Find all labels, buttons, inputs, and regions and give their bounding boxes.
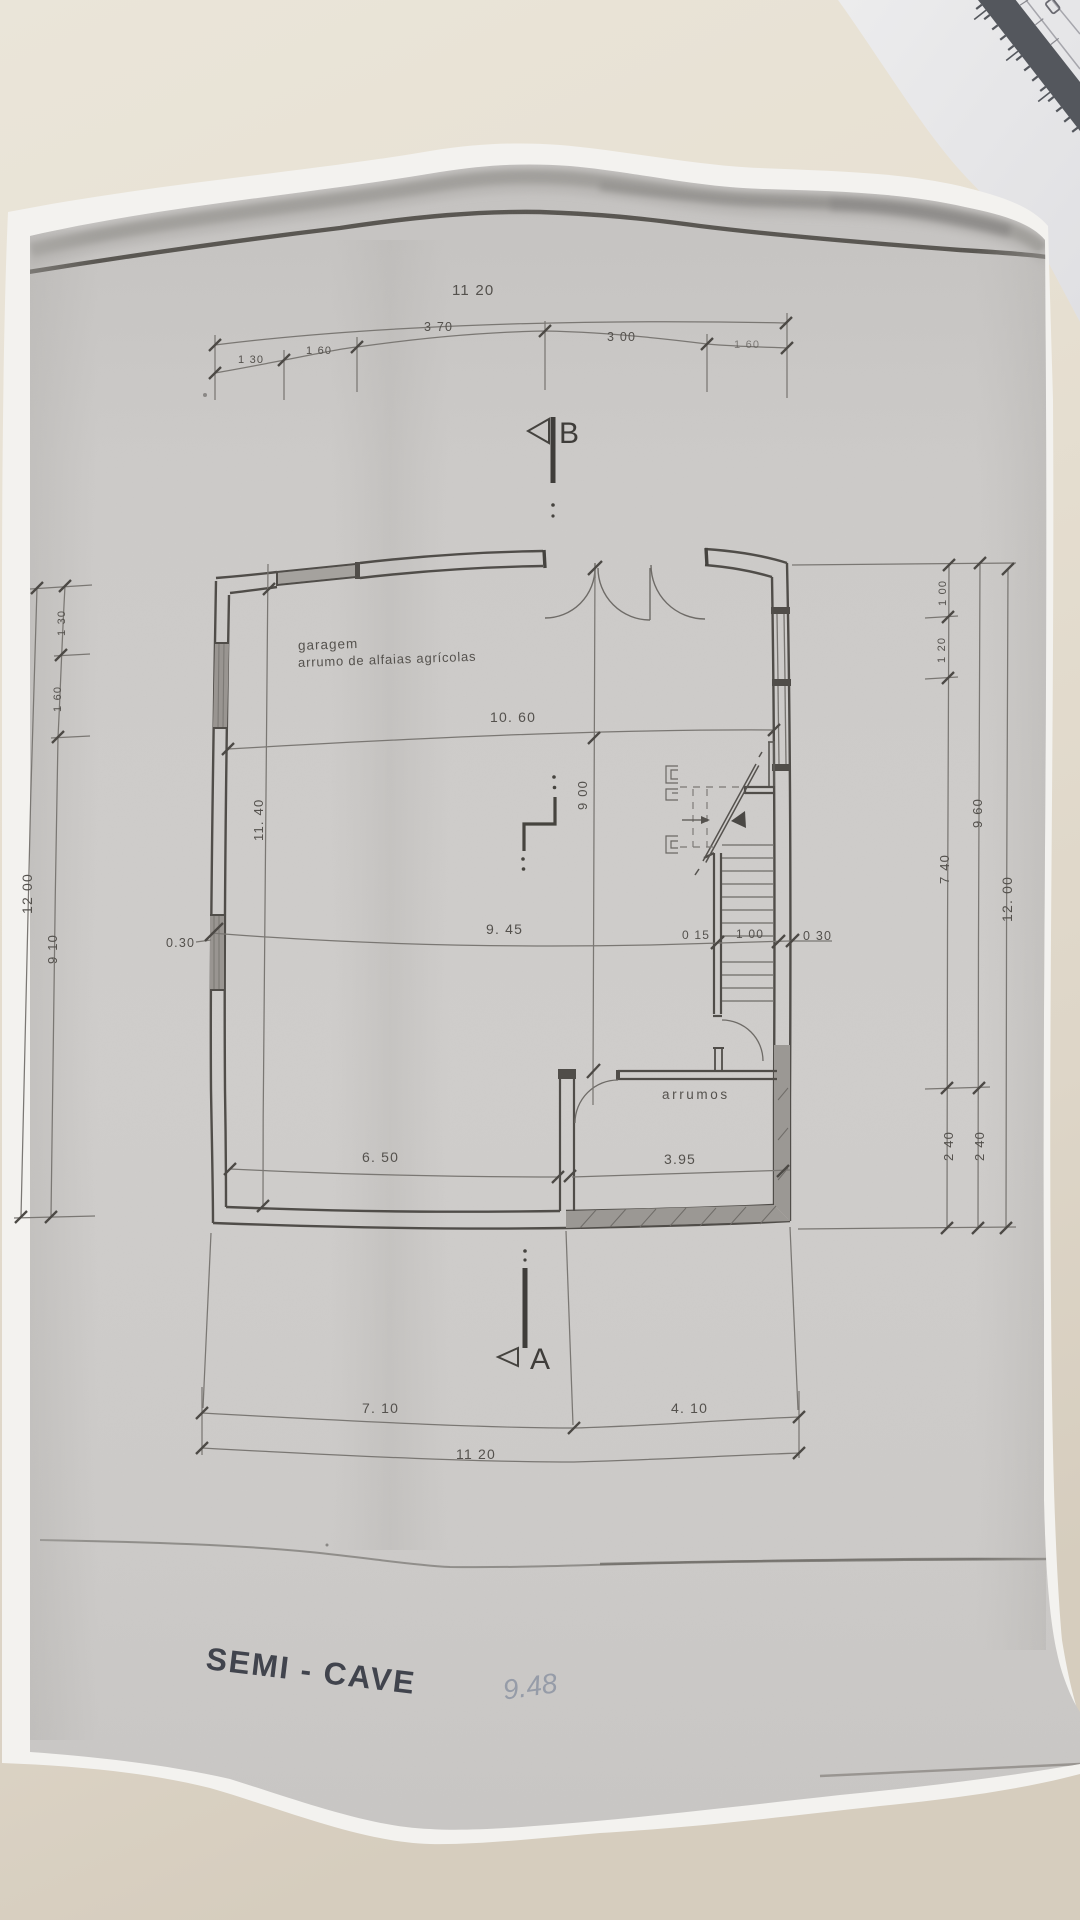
svg-text:12 00: 12 00 [19, 873, 35, 914]
svg-text:9. 45: 9. 45 [486, 921, 523, 937]
svg-text:7. 10: 7. 10 [362, 1400, 399, 1416]
svg-text:12. 00: 12. 00 [999, 876, 1015, 922]
svg-text:0 15: 0 15 [682, 928, 710, 942]
svg-text:11 20: 11 20 [456, 1446, 496, 1462]
svg-text:4. 10: 4. 10 [671, 1400, 708, 1416]
svg-text:1 20: 1 20 [936, 637, 948, 663]
svg-text:1 60: 1 60 [306, 345, 332, 357]
svg-text:2 40: 2 40 [972, 1131, 987, 1161]
svg-text:B: B [559, 417, 579, 450]
svg-text:arrumos: arrumos [662, 1087, 730, 1102]
svg-text:garagem: garagem [298, 636, 359, 653]
svg-text:7 40: 7 40 [937, 854, 952, 884]
svg-text:11. 40: 11. 40 [251, 799, 266, 841]
svg-text:1 00: 1 00 [736, 927, 764, 941]
svg-text:3.95: 3.95 [664, 1151, 696, 1167]
svg-text:10. 60: 10. 60 [490, 709, 536, 725]
svg-text:1 60: 1 60 [734, 339, 760, 351]
svg-text:6. 50: 6. 50 [362, 1149, 399, 1165]
svg-text:1 30: 1 30 [56, 610, 68, 636]
svg-text:1 60: 1 60 [52, 686, 64, 712]
svg-text:A: A [530, 1343, 550, 1376]
svg-text:1 30: 1 30 [238, 354, 264, 366]
svg-text:2 40: 2 40 [941, 1131, 956, 1161]
svg-text:3 00: 3 00 [607, 330, 636, 344]
svg-text:3 70: 3 70 [424, 320, 453, 334]
svg-text:11 20: 11 20 [452, 282, 494, 299]
svg-text:9 10: 9 10 [45, 934, 60, 964]
svg-text:0 30: 0 30 [803, 929, 832, 943]
svg-text:9 60: 9 60 [970, 798, 985, 828]
svg-text:9 00: 9 00 [575, 780, 590, 810]
svg-text:1 00: 1 00 [937, 580, 949, 606]
svg-text:0.30: 0.30 [166, 936, 195, 950]
